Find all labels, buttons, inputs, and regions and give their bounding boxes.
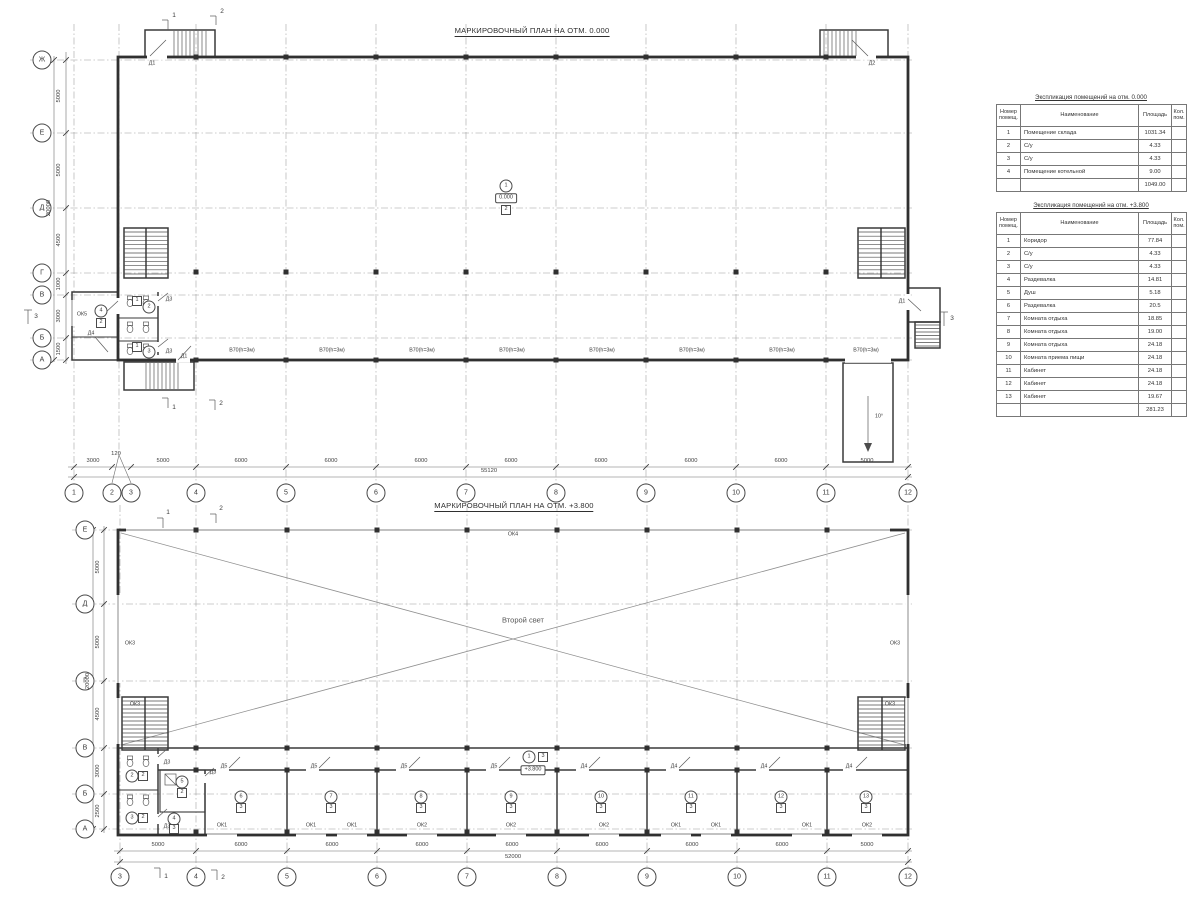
table-cell: 19.00 (1139, 326, 1172, 339)
table-cell: 18.85 (1139, 313, 1172, 326)
table-cell (1172, 378, 1187, 391)
partition-walls (72, 30, 940, 835)
table-cell (1172, 179, 1187, 192)
table-cell (1172, 339, 1187, 352)
table-cell (1172, 166, 1187, 179)
table-cell: 5 (997, 287, 1021, 300)
table-cell: 4.33 (1139, 153, 1172, 166)
table-cell: 14.81 (1139, 274, 1172, 287)
table-cell: Комната отдыха (1021, 313, 1139, 326)
table-header: Номер помещ. (997, 105, 1021, 127)
table-header: Площадь (1139, 213, 1172, 235)
table-header: Номер помещ. (997, 213, 1021, 235)
table-cell: Комната приема пищи (1021, 352, 1139, 365)
table-cell (1172, 365, 1187, 378)
table-cell: 12 (997, 378, 1021, 391)
table-cell: 20.5 (1139, 300, 1172, 313)
table-cell: Кабинет (1021, 378, 1139, 391)
table-cell: 9.00 (1139, 166, 1172, 179)
table-cell: 8 (997, 326, 1021, 339)
table-cell (1172, 127, 1187, 140)
table-cell: Помещение склада (1021, 127, 1139, 140)
table-cell: 10 (997, 352, 1021, 365)
table-cell (1021, 404, 1139, 417)
explication-table: Номер помещ.НаименованиеПлощадьКол. пом.… (996, 212, 1187, 417)
table-cell: 4 (997, 166, 1021, 179)
table-cell: Раздевалка (1021, 274, 1139, 287)
table-cell: 281.23 (1139, 404, 1172, 417)
table-cell (1172, 326, 1187, 339)
table-cell: 11 (997, 365, 1021, 378)
table-cell (1172, 274, 1187, 287)
table-cell (1172, 235, 1187, 248)
table-cell: 24.18 (1139, 352, 1172, 365)
table-cell (1172, 140, 1187, 153)
columns (194, 55, 830, 835)
table-title: Экспликация помещений на отм. +3.800 (996, 202, 1186, 209)
table-cell: 77.84 (1139, 235, 1172, 248)
table-cell: Душ (1021, 287, 1139, 300)
table-cell: 4 (997, 274, 1021, 287)
table-cell: 7 (997, 313, 1021, 326)
table-cell: С/у (1021, 248, 1139, 261)
table-cell (1172, 248, 1187, 261)
table-cell: 4.33 (1139, 261, 1172, 274)
table-header: Кол. пом. (1172, 213, 1187, 235)
explication-table: Номер помещ.НаименованиеПлощадьКол. пом.… (996, 104, 1187, 192)
table-cell: 3 (997, 261, 1021, 274)
table-cell: 13 (997, 391, 1021, 404)
table-cell: 24.18 (1139, 365, 1172, 378)
table-cell: 3 (997, 153, 1021, 166)
table-title: Экспликация помещений на отм. 0.000 (996, 94, 1186, 101)
table-cell: 24.18 (1139, 339, 1172, 352)
table-header: Наименование (1021, 105, 1139, 127)
table-cell: Помещение котельной (1021, 166, 1139, 179)
table-cell (1172, 313, 1187, 326)
table-cell (997, 404, 1021, 417)
table-cell: Комната отдыха (1021, 339, 1139, 352)
table-cell: Кабинет (1021, 391, 1139, 404)
table-cell (997, 179, 1021, 192)
table-cell: 9 (997, 339, 1021, 352)
table-cell: Кабинет (1021, 365, 1139, 378)
table-cell (1172, 352, 1187, 365)
openings (69, 54, 911, 837)
table-cell (1172, 153, 1187, 166)
table-cell: С/у (1021, 261, 1139, 274)
table-cell (1172, 300, 1187, 313)
table-cell: Раздевалка (1021, 300, 1139, 313)
stair-hatch (122, 31, 940, 750)
bottom-plan-title: МАРКИРОВОЧНЫЙ ПЛАН НА ОТМ. +3.800 (434, 501, 593, 512)
table-cell: 1 (997, 235, 1021, 248)
table-cell (1172, 261, 1187, 274)
table-cell: 1031.34 (1139, 127, 1172, 140)
table-cell: 19.67 (1139, 391, 1172, 404)
table-header: Площадь (1139, 105, 1172, 127)
axis-grid (30, 24, 912, 868)
table-cell: 5.18 (1139, 287, 1172, 300)
table-header: Кол. пом. (1172, 105, 1187, 127)
exterior-walls (118, 57, 908, 835)
table-cell: 2 (997, 140, 1021, 153)
table-cell: Комната отдыха (1021, 326, 1139, 339)
explication-table-0: Экспликация помещений на отм. 0.000 Номе… (996, 94, 1186, 192)
top-plan-title: МАРКИРОВОЧНЫЙ ПЛАН НА ОТМ. 0.000 (455, 26, 610, 37)
table-cell (1021, 179, 1139, 192)
table-cell: Коридор (1021, 235, 1139, 248)
table-cell: 4.33 (1139, 248, 1172, 261)
drawing-sheet: МАРКИРОВОЧНЫЙ ПЛАН НА ОТМ. 0.000 МАРКИРО… (0, 0, 1200, 900)
table-cell (1172, 404, 1187, 417)
table-cell (1172, 391, 1187, 404)
table-cell: 1 (997, 127, 1021, 140)
table-cell: 4.33 (1139, 140, 1172, 153)
table-cell: 1049.00 (1139, 179, 1172, 192)
table-cell: 6 (997, 300, 1021, 313)
table-header: Наименование (1021, 213, 1139, 235)
table-cell: С/у (1021, 153, 1139, 166)
table-cell: С/у (1021, 140, 1139, 153)
explication-table-1: Экспликация помещений на отм. +3.800 Ном… (996, 202, 1186, 417)
table-cell: 2 (997, 248, 1021, 261)
table-cell (1172, 287, 1187, 300)
table-cell: 24.18 (1139, 378, 1172, 391)
dimension-lines (51, 52, 912, 865)
